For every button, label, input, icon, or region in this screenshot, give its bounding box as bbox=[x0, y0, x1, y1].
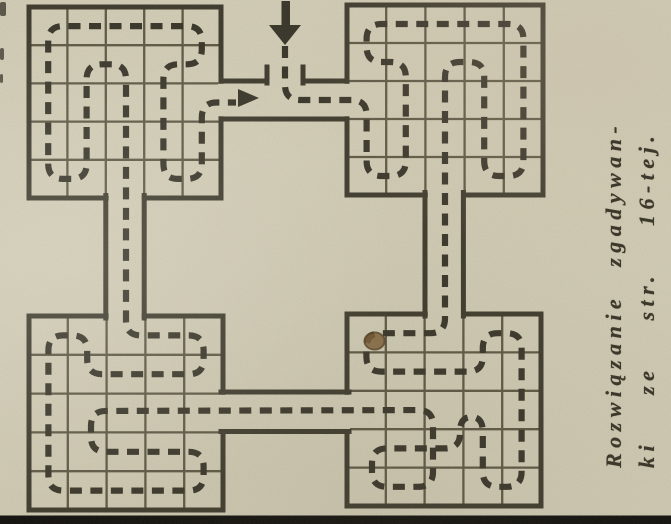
maze-diagram bbox=[0, 0, 671, 524]
scanned-page: Rozwiązanie zgadywan- ki ze str. 16-tej. bbox=[0, 0, 671, 524]
caption-line-2: ki ze str. 16-tej. bbox=[630, 38, 663, 468]
caption-line-1: Rozwiązanie zgadywan- bbox=[597, 38, 630, 468]
paper-grain bbox=[0, 0, 671, 524]
caption: Rozwiązanie zgadywan- ki ze str. 16-tej. bbox=[597, 38, 663, 468]
